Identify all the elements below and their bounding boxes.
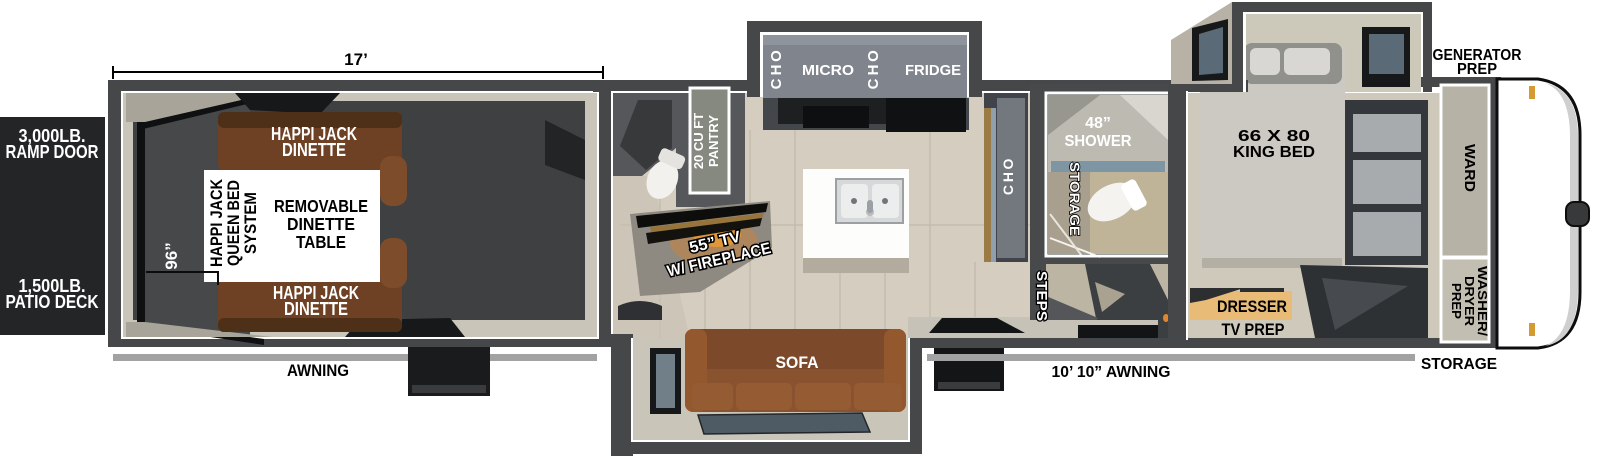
svg-text:O: O bbox=[768, 50, 785, 62]
svg-text:DINETTE: DINETTE bbox=[282, 140, 346, 160]
svg-text:KING BED: KING BED bbox=[1233, 144, 1315, 161]
svg-text:AWNING: AWNING bbox=[287, 361, 349, 380]
svg-text:96”: 96” bbox=[162, 242, 181, 269]
svg-text:PATIO DECK: PATIO DECK bbox=[6, 292, 99, 312]
svg-text:H: H bbox=[768, 65, 785, 76]
svg-text:H: H bbox=[1000, 172, 1016, 182]
svg-text:TABLE: TABLE bbox=[296, 232, 346, 252]
svg-text:DINETTE: DINETTE bbox=[284, 299, 348, 319]
svg-text:STEPS: STEPS bbox=[1033, 271, 1050, 321]
svg-text:SYSTEM: SYSTEM bbox=[242, 192, 260, 254]
svg-text:SHOWER: SHOWER bbox=[1065, 133, 1132, 150]
svg-text:REMOVABLE: REMOVABLE bbox=[274, 196, 368, 216]
svg-text:DINETTE: DINETTE bbox=[287, 214, 355, 234]
svg-text:48”: 48” bbox=[1085, 115, 1111, 132]
svg-text:C: C bbox=[768, 78, 785, 89]
svg-text:RAMP DOOR: RAMP DOOR bbox=[6, 142, 99, 162]
svg-text:C: C bbox=[865, 78, 882, 89]
svg-text:HAPPI JACK: HAPPI JACK bbox=[208, 179, 226, 267]
svg-text:MICRO: MICRO bbox=[802, 62, 854, 79]
svg-text:PREP: PREP bbox=[1449, 283, 1464, 319]
svg-text:STORAGE: STORAGE bbox=[1421, 356, 1497, 373]
svg-text:DRESSER: DRESSER bbox=[1217, 297, 1287, 316]
svg-text:17’: 17’ bbox=[344, 50, 368, 69]
svg-text:C: C bbox=[1000, 185, 1016, 195]
svg-text:O: O bbox=[1000, 158, 1016, 169]
svg-text:FRIDGE: FRIDGE bbox=[905, 62, 961, 79]
svg-text:66 X 80: 66 X 80 bbox=[1238, 128, 1310, 145]
svg-text:QUEEN BED: QUEEN BED bbox=[225, 180, 243, 266]
svg-text:10’ 10” AWNING: 10’ 10” AWNING bbox=[1052, 364, 1171, 381]
svg-text:20 CU FT: 20 CU FT bbox=[691, 113, 706, 169]
svg-text:H: H bbox=[865, 65, 882, 76]
svg-text:SOFA: SOFA bbox=[776, 353, 819, 372]
svg-text:WARD: WARD bbox=[1461, 144, 1478, 192]
svg-text:PANTRY: PANTRY bbox=[706, 115, 721, 167]
svg-text:PREP: PREP bbox=[1457, 61, 1497, 78]
svg-text:STORAGE: STORAGE bbox=[1067, 162, 1083, 236]
svg-text:TV PREP: TV PREP bbox=[1222, 320, 1285, 339]
svg-text:O: O bbox=[865, 50, 882, 62]
